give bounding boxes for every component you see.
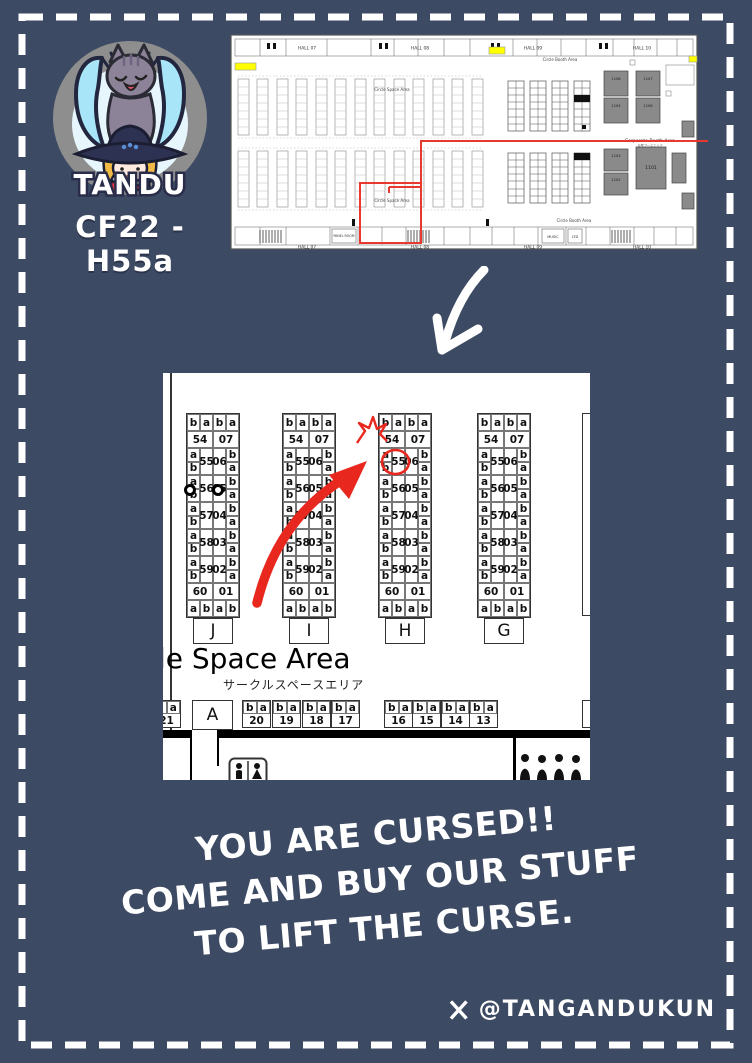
seat-cell: 07 (309, 431, 335, 448)
seat-cell: b (517, 556, 530, 570)
booth-number: 19 (273, 714, 300, 727)
booth-20: ba20 (242, 700, 271, 728)
seat-cell: a (392, 414, 405, 431)
seat-cell: b (478, 462, 491, 476)
seat-cell: b (187, 516, 200, 530)
seat-cell: 60 (478, 583, 504, 600)
seat-cell: a (478, 448, 491, 462)
seat-cell: a (478, 529, 491, 543)
booth-column-G: baba5407ab5506baab5605baab5704baab5803ba… (477, 413, 531, 618)
seat-cell: a (399, 701, 413, 714)
seat-cell: a (213, 600, 226, 617)
seat-cell: a (226, 516, 239, 530)
seat-cell: a (504, 600, 517, 617)
seat-cell: b (385, 701, 399, 714)
booth-number: 13 (470, 714, 497, 727)
booth-highlight-circle (380, 448, 411, 476)
seat-cell: a (427, 701, 441, 714)
seat-cell: b (517, 475, 530, 489)
seat-cell: a (257, 701, 271, 714)
booth-number: 20 (243, 714, 270, 727)
seat-cell: b (332, 701, 346, 714)
seat-cell: a (317, 701, 331, 714)
seat-cell: 55 (491, 448, 504, 475)
seat-cell: 07 (504, 431, 530, 448)
red-arrow (243, 451, 383, 616)
seat-cell: b (187, 543, 200, 557)
seat-cell: a (226, 414, 239, 431)
booth-number: 15 (413, 714, 440, 727)
logo-title: TANDU (73, 168, 186, 201)
seat-cell: a (491, 414, 504, 431)
seat-cell: 59 (392, 556, 405, 583)
seat-cell: 05 (405, 475, 418, 502)
seat-cell: 01 (504, 583, 530, 600)
column-label-I: I (289, 618, 329, 644)
seat-cell: b (517, 529, 530, 543)
seat-cell: b (405, 414, 418, 431)
seat-cell: 04 (405, 502, 418, 529)
seat-cell: b (418, 502, 431, 516)
seat-cell: 01 (405, 583, 431, 600)
seat-cell: b (226, 600, 239, 617)
seat-cell: b (187, 414, 200, 431)
seat-cell: b (517, 502, 530, 516)
seat-cell: a (226, 570, 239, 584)
poster: TANDU CF22 - H55a HALL 07 HALL 08 HALL 0… (0, 0, 752, 1063)
seat-cell: 56 (491, 475, 504, 502)
seat-cell: b (243, 701, 257, 714)
seat-cell: b (478, 570, 491, 584)
seat-cell: b (478, 516, 491, 530)
seat-cell: 58 (392, 529, 405, 556)
seat-cell: a (418, 516, 431, 530)
wall-line (217, 730, 219, 766)
seat-cell: a (478, 475, 491, 489)
seat-cell: b (226, 448, 239, 462)
seat-cell: a (187, 529, 200, 543)
column-label-J: J (193, 618, 233, 644)
doorway (191, 730, 217, 738)
seat-cell: a (478, 600, 491, 617)
seat-cell: b (413, 701, 427, 714)
seat-cell: 59 (491, 556, 504, 583)
pillar-marker-icon (184, 484, 196, 496)
restroom-icon (228, 757, 268, 780)
down-arrow-icon (398, 266, 508, 371)
area-label: Circle Space Area (374, 87, 410, 92)
seat-cell: b (491, 600, 504, 617)
corp-num: 1104 (611, 104, 621, 108)
seat-cell: a (346, 701, 360, 714)
seat-cell: b (226, 556, 239, 570)
seat-cell: b (283, 414, 296, 431)
booth-number: 14 (442, 714, 469, 727)
seat-cell: 02 (213, 556, 226, 583)
seat-cell: a (200, 414, 213, 431)
seat-cell: a (167, 701, 181, 714)
wall (163, 730, 590, 738)
booth-18: ba18 (302, 700, 331, 728)
seat-cell: b (187, 570, 200, 584)
seat-cell: a (517, 516, 530, 530)
corporate-area-label-jp: 企業ブースエリア (637, 143, 662, 148)
seat-cell: a (226, 462, 239, 476)
corp-num: 1107 (643, 77, 652, 81)
booth-number: 16 (385, 714, 412, 727)
corp-num: 1102 (611, 178, 620, 182)
wall-line (170, 373, 172, 730)
seat-cell: b (392, 600, 405, 617)
seat-cell: 58 (491, 529, 504, 556)
seat-cell: 06 (213, 448, 226, 475)
seat-cell: 60 (187, 583, 213, 600)
column-label-G: G (484, 618, 524, 644)
seat-cell: a (322, 414, 335, 431)
booth-17: ba17 (331, 700, 360, 728)
seat-cell: 04 (213, 502, 226, 529)
seat-cell: a (478, 502, 491, 516)
seat-cell: 57 (491, 502, 504, 529)
seat-cell: a (478, 556, 491, 570)
seat-cell: b (478, 543, 491, 557)
hall-label: HALL 08 (411, 46, 429, 52)
seat-cell: a (187, 600, 200, 617)
hall-label: HALL 07 (298, 46, 316, 52)
seat-cell: a (517, 489, 530, 503)
hall-label: HALL 10 (633, 245, 651, 251)
corp-num: 1101 (645, 165, 657, 171)
seat-cell: b (478, 414, 491, 431)
seat-cell: b (226, 475, 239, 489)
seat-cell: 59 (200, 556, 213, 583)
seat-cell: a (484, 701, 498, 714)
seat-cell: a (418, 570, 431, 584)
seat-cell: b (442, 701, 456, 714)
hall-label: HALL 10 (633, 46, 651, 52)
seat-cell: 06 (504, 448, 517, 475)
seat-cell: a (226, 489, 239, 503)
seat-cell: b (504, 414, 517, 431)
seat-cell: a (296, 414, 309, 431)
seat-cell: 03 (213, 529, 226, 556)
area-label: Circle Space Area (374, 198, 410, 203)
seat-cell: a (456, 701, 470, 714)
entrance-a-box: A (192, 700, 233, 730)
seat-cell: a (418, 414, 431, 431)
booth-16: ba16 (384, 700, 413, 728)
seat-cell: 01 (213, 583, 239, 600)
seat-cell: b (226, 502, 239, 516)
seat-cell: a (226, 543, 239, 557)
music-label: MUSIC (547, 235, 559, 239)
overview-floor-plan: HALL 07 HALL 08 HALL 09 HALL 10 Circle S… (230, 33, 710, 253)
seat-cell: b (418, 475, 431, 489)
booth-number: 18 (303, 714, 330, 727)
seat-cell: 54 (283, 431, 309, 448)
seat-cell: b (309, 414, 322, 431)
seat-cell: b (517, 600, 530, 617)
seat-cell: a (517, 570, 530, 584)
booth-19: ba19 (272, 700, 301, 728)
partial-column (582, 413, 590, 616)
handle-text: @TANGANDUKUN (479, 997, 716, 1022)
seat-cell: b (418, 448, 431, 462)
area-label: Circle Booth Area (543, 57, 578, 62)
seat-cell: b (200, 600, 213, 617)
social-handle: @TANGANDUKUN (449, 997, 716, 1022)
people-silhouettes-icon (515, 751, 590, 780)
seat-cell: b (418, 556, 431, 570)
booth-number: 17 (332, 714, 359, 727)
seat-cell: a (287, 701, 301, 714)
circle-space-area-label-jp: サークルスペースエリア (223, 676, 364, 693)
booth-code: CF22 - H55a (28, 210, 232, 278)
booth-21: ba21 (163, 700, 181, 728)
hall-label: HALL 09 (524, 245, 542, 251)
seat-cell: 54 (187, 431, 213, 448)
seat-cell: b (213, 414, 226, 431)
seat-cell: b (273, 701, 287, 714)
circle-space-area-label: le Space Area (163, 642, 351, 675)
seat-cell: b (517, 448, 530, 462)
seat-cell: b (418, 529, 431, 543)
hall-label: HALL 08 (411, 245, 429, 251)
panel-room-label: PANEL ROOM (333, 234, 354, 238)
seat-cell: a (187, 448, 200, 462)
seat-cell: a (517, 462, 530, 476)
seat-cell: 58 (200, 529, 213, 556)
seat-cell: b (418, 600, 431, 617)
seat-cell: a (517, 414, 530, 431)
booth-13: ba13 (469, 700, 498, 728)
seat-cell: b (226, 529, 239, 543)
seat-cell: b (187, 462, 200, 476)
seat-cell: b (303, 701, 317, 714)
booth-number: 21 (163, 714, 180, 727)
seat-cell: a (517, 543, 530, 557)
seat-cell: 02 (504, 556, 517, 583)
seat-cell: 03 (504, 529, 517, 556)
corp-num: 1103 (611, 154, 620, 158)
zoomed-floor-plan: baba5407ab5506baab5605baab5704baab5803ba… (163, 373, 590, 780)
seat-cell: 05 (504, 475, 517, 502)
tandu-logo: TANDU (50, 36, 210, 206)
seat-cell: a (418, 543, 431, 557)
partial-booth (582, 700, 590, 728)
seat-cell: a (187, 502, 200, 516)
area-label: Circle Booth Area (557, 218, 592, 223)
seat-cell: 55 (200, 448, 213, 475)
wall-line (190, 730, 192, 780)
seat-cell: b (470, 701, 484, 714)
seat-cell: 57 (200, 502, 213, 529)
column-label-H: H (385, 618, 425, 644)
seat-cell: 03 (405, 529, 418, 556)
booth-14: ba14 (441, 700, 470, 728)
x-logo-icon (449, 1000, 469, 1020)
seat-cell: a (187, 556, 200, 570)
booth-column-J: baba5407ab5506baab5605baab5704baab5803ba… (186, 413, 240, 618)
seat-cell: 07 (213, 431, 239, 448)
pillar-marker-icon (212, 484, 224, 496)
seat-cell: 04 (504, 502, 517, 529)
seat-cell: 54 (478, 431, 504, 448)
seat-cell: 57 (392, 502, 405, 529)
booth-15: ba15 (412, 700, 441, 728)
seat-cell: a (405, 600, 418, 617)
impact-spark-icon (354, 415, 388, 447)
seat-cell: 02 (405, 556, 418, 583)
seat-cell: a (418, 462, 431, 476)
hall-label: HALL 09 (524, 46, 542, 52)
ltd-label: LTD (572, 235, 579, 239)
seat-cell: 07 (405, 431, 431, 448)
corp-num: 1106 (643, 104, 653, 108)
seat-cell: b (478, 489, 491, 503)
corp-num: 1108 (611, 77, 621, 81)
seat-cell: a (418, 489, 431, 503)
hall-label: HALL 07 (298, 245, 316, 251)
seat-cell: 56 (392, 475, 405, 502)
